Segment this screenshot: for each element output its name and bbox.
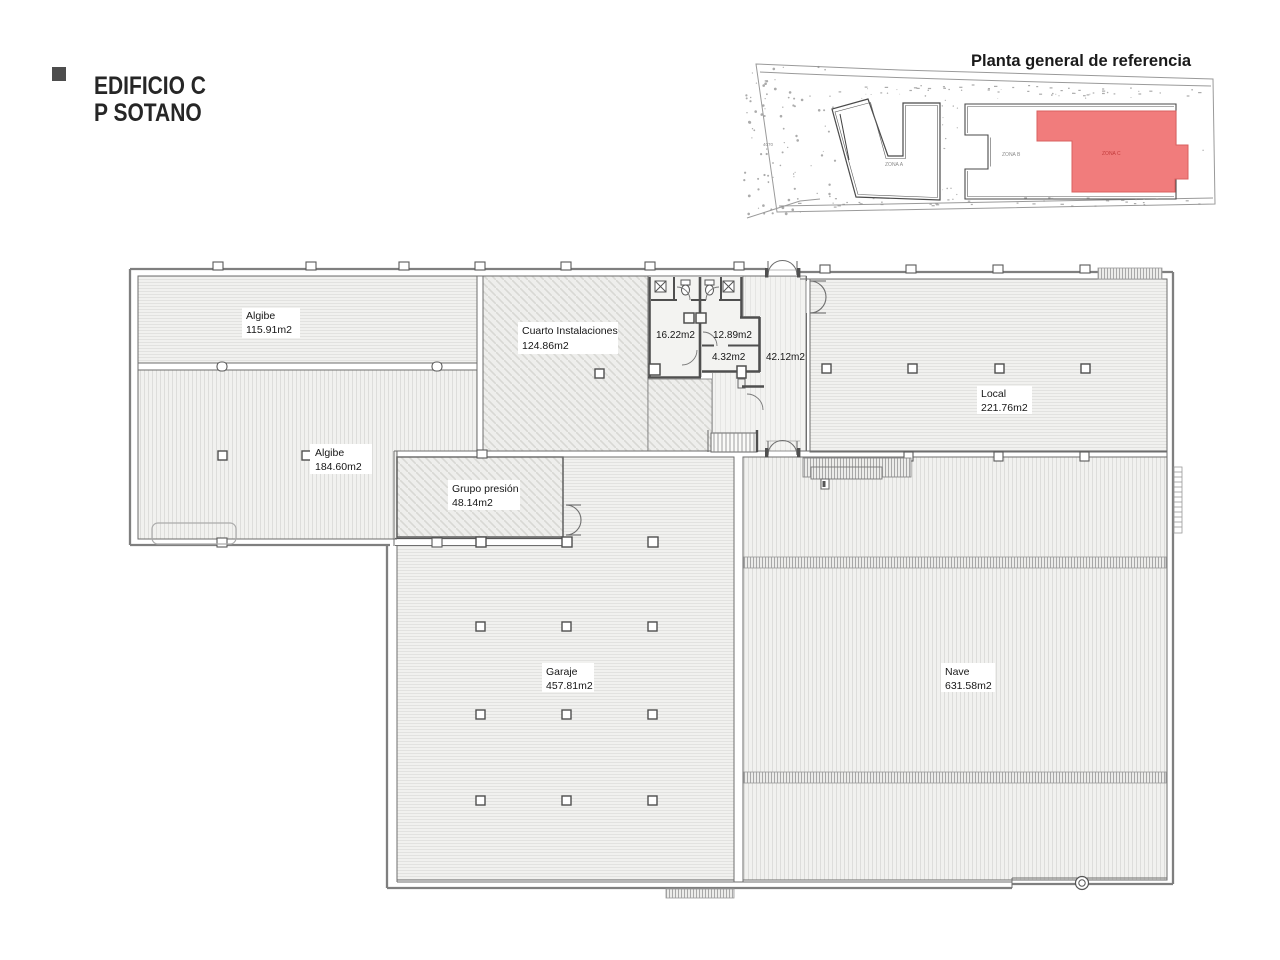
svg-text:Algibe: Algibe	[246, 310, 275, 322]
svg-text:42.12m2: 42.12m2	[766, 352, 805, 363]
svg-text:ZONA A: ZONA A	[885, 162, 904, 168]
svg-text:EDIFICIO C: EDIFICIO C	[94, 71, 206, 99]
svg-text:Garaje: Garaje	[546, 666, 578, 678]
svg-text:124.86m2: 124.86m2	[522, 340, 569, 352]
svg-text:P SOTANO: P SOTANO	[94, 98, 202, 126]
svg-text:221.76m2: 221.76m2	[981, 402, 1028, 414]
svg-text:Cuarto Instalaciones: Cuarto Instalaciones	[522, 325, 618, 337]
svg-text:Grupo presión: Grupo presión	[452, 483, 519, 495]
svg-text:12.89m2: 12.89m2	[713, 330, 752, 341]
svg-text:4.32m2: 4.32m2	[712, 352, 746, 363]
svg-text:4070: 4070	[763, 142, 774, 147]
svg-text:Nave: Nave	[945, 666, 970, 678]
svg-text:Local: Local	[981, 388, 1006, 400]
svg-text:16.22m2: 16.22m2	[656, 330, 695, 341]
svg-text:115.91m2: 115.91m2	[246, 324, 292, 336]
svg-text:ZONA B: ZONA B	[1002, 152, 1021, 158]
svg-text:457.81m2: 457.81m2	[546, 680, 593, 692]
svg-text:48.14m2: 48.14m2	[452, 497, 493, 509]
svg-text:184.60m2: 184.60m2	[315, 461, 362, 473]
svg-text:631.58m2: 631.58m2	[945, 680, 992, 692]
svg-text:Planta general de referencia: Planta general de referencia	[971, 52, 1192, 70]
svg-text:ZONA C: ZONA C	[1102, 151, 1121, 157]
svg-text:Algibe: Algibe	[315, 447, 344, 459]
